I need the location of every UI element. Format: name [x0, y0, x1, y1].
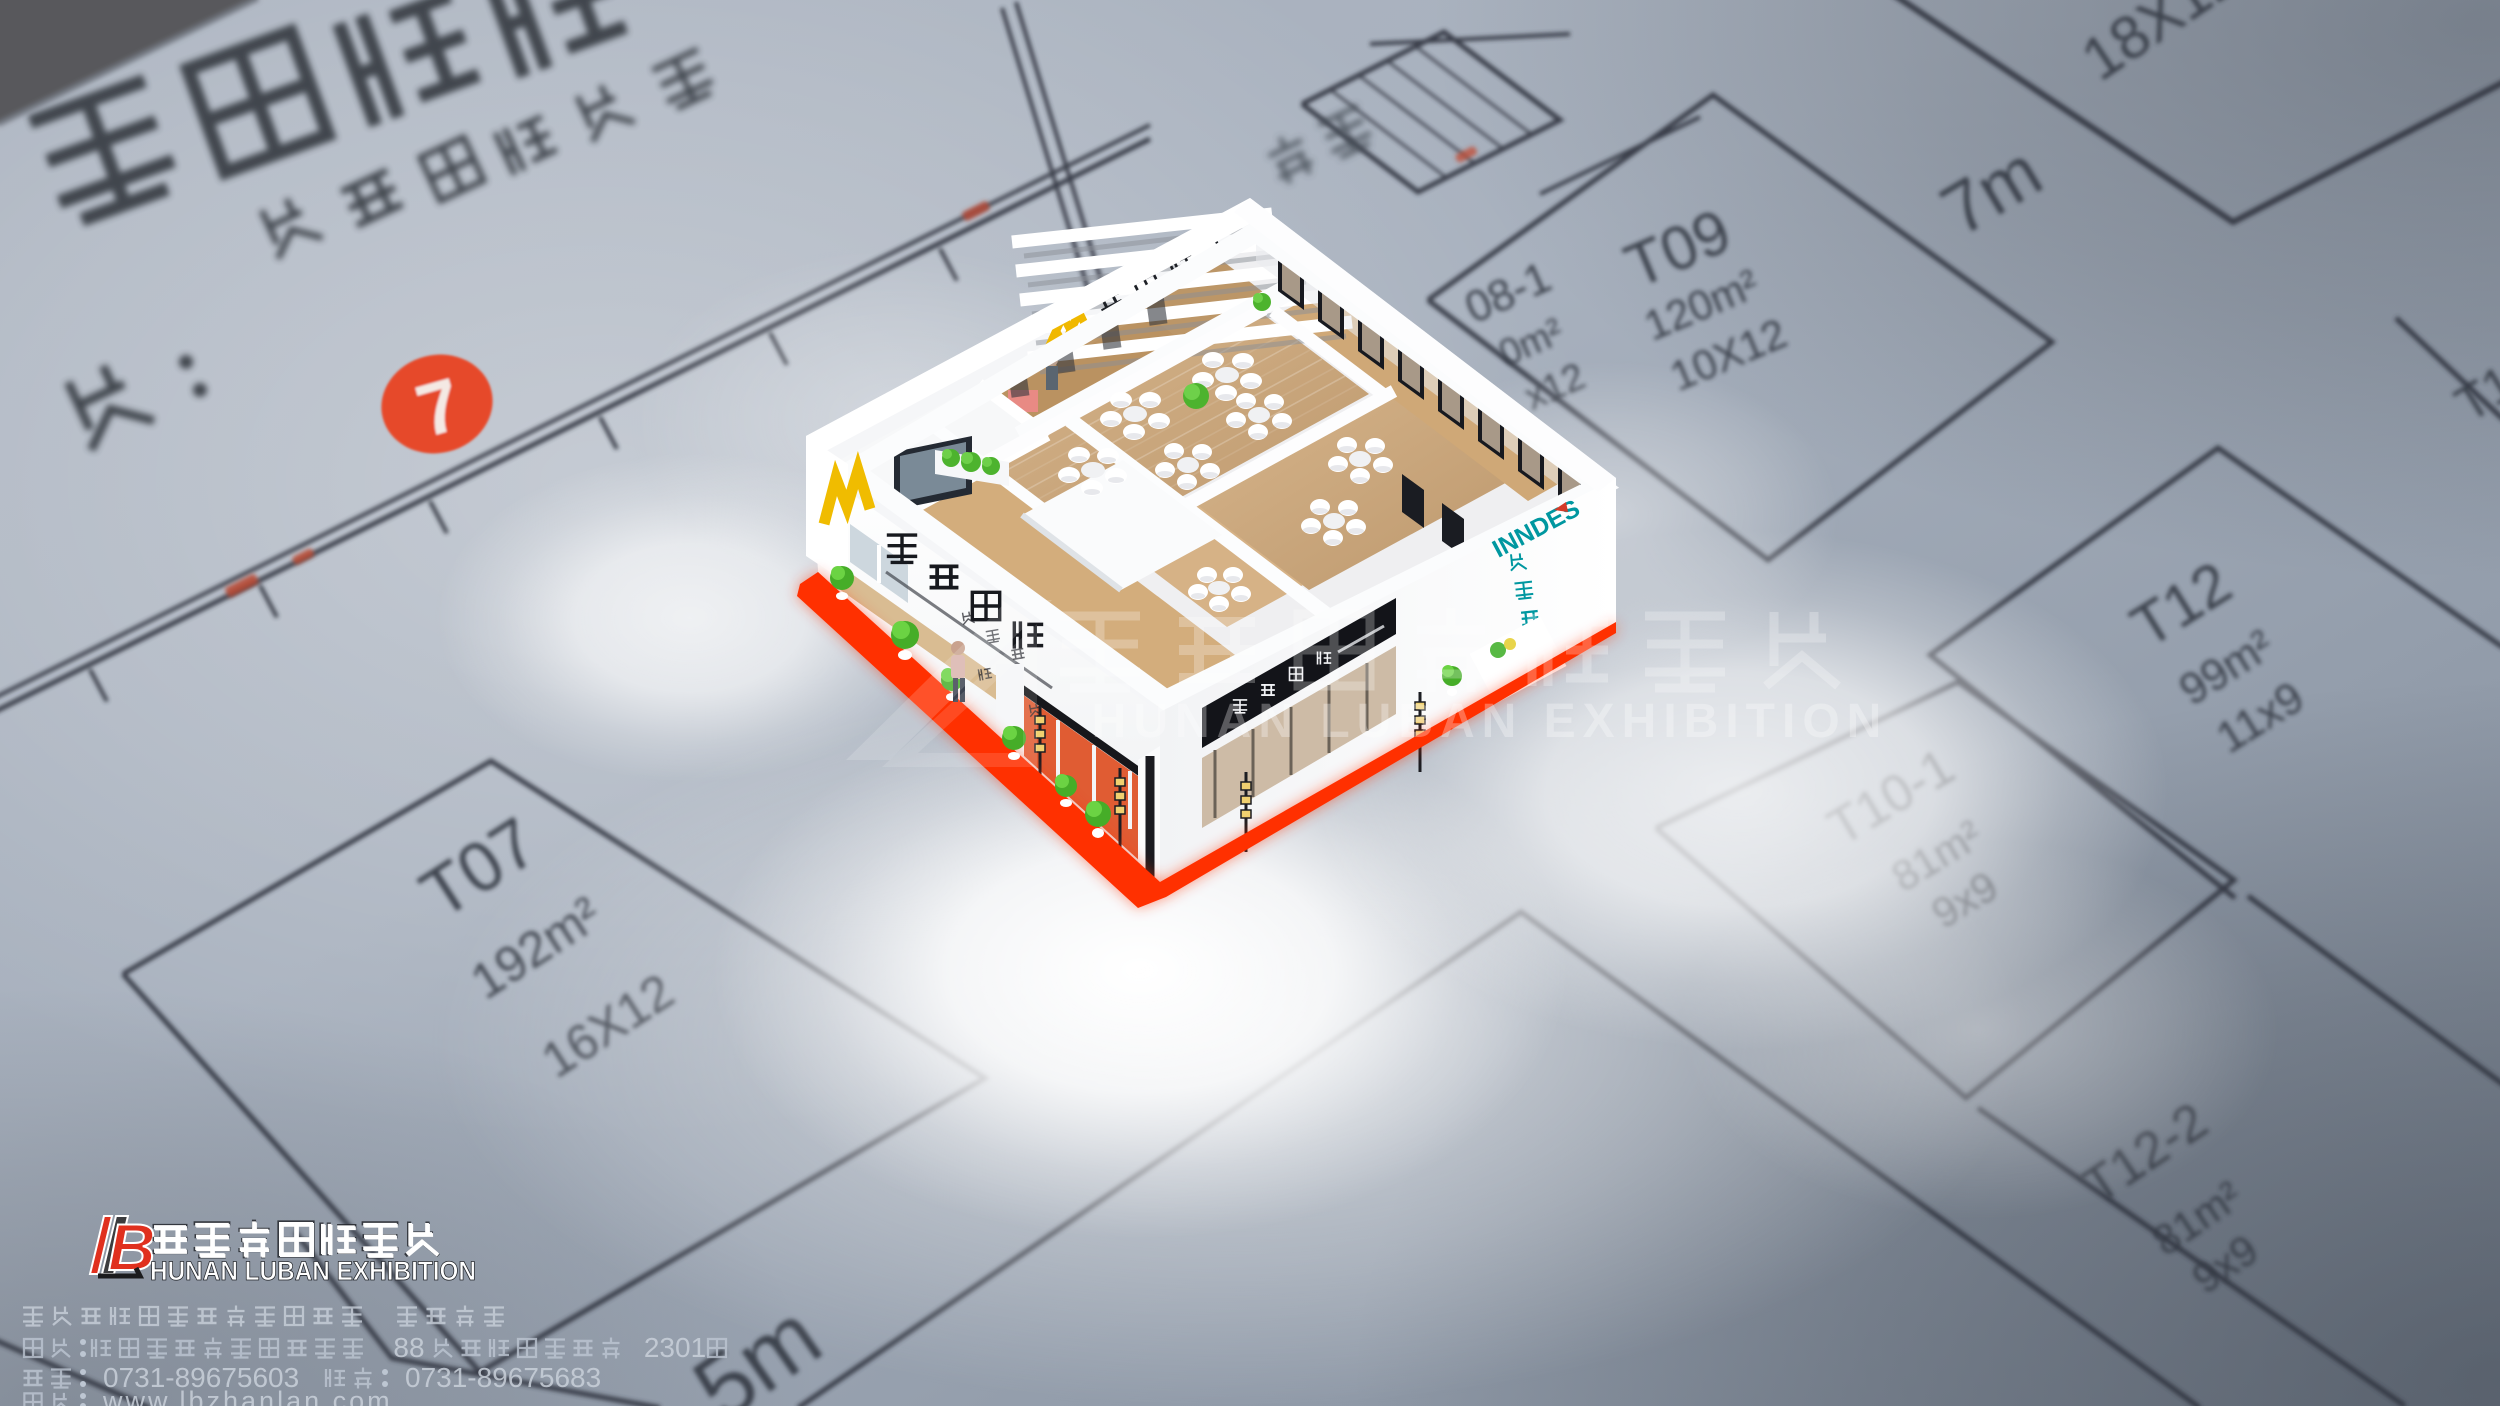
svg-text:HUNAN LUBAN EXHIBITION: HUNAN LUBAN EXHIBITION: [150, 1256, 476, 1286]
svg-text:88: 88: [393, 1332, 424, 1363]
svg-text:www.lbzhanlan.com: www.lbzhanlan.com: [102, 1386, 393, 1406]
svg-text:HUNAN LUBAN EXHIBITION: HUNAN LUBAN EXHIBITION: [1092, 695, 1889, 748]
svg-text:B: B: [108, 1210, 156, 1284]
svg-text:2301: 2301: [644, 1332, 706, 1363]
svg-text:0731-89675683: 0731-89675683: [405, 1362, 601, 1393]
